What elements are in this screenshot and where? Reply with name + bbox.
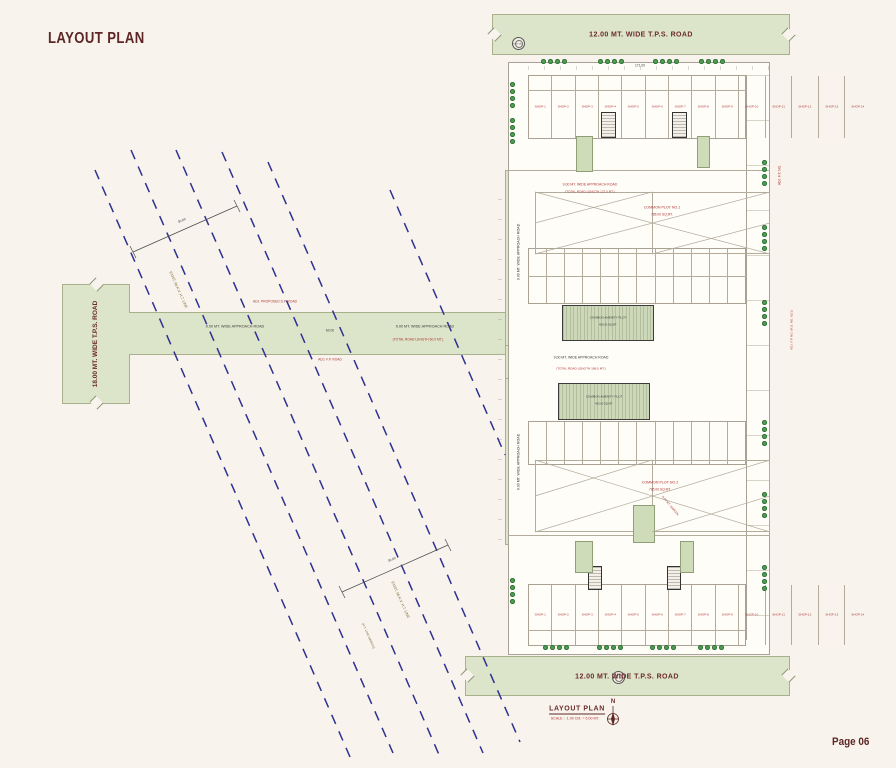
tree-icon: [762, 307, 767, 312]
shop-cell: SHOP-10: [739, 76, 766, 138]
tree-icon: [510, 96, 515, 101]
tree-icon: [719, 645, 724, 650]
tree-icon: [762, 225, 767, 230]
tree-icon: [510, 118, 515, 123]
shop-cell: SHOP-13: [819, 76, 846, 138]
bottom-road-label: 12.00 MT. WIDE T.P.S. ROAD: [575, 674, 679, 681]
amenity-plot-2: [558, 383, 650, 420]
shop-label: SHOP-1: [535, 106, 546, 109]
tree-icon: [541, 59, 546, 64]
vertical-road-label-lower: 9.00 MT. WIDE APPROACH ROAD: [517, 434, 521, 491]
vertical-road-label-upper: 9.00 MT. WIDE APPROACH ROAD: [517, 224, 521, 281]
ht-dimension-lines: [130, 200, 451, 598]
amenity-plot-2-area: 450.00 SQ.MT.: [595, 403, 613, 406]
dimension-ticks-top: [528, 66, 770, 70]
tree-icon: [706, 59, 711, 64]
tree-icon: [762, 420, 767, 425]
ht-span-dimension-1: 30.00: [178, 218, 187, 224]
shop-cell: SHOP-10: [739, 585, 766, 645]
tree-icon: [705, 645, 710, 650]
tree-icon: [762, 321, 767, 326]
tree-icon: [510, 139, 515, 144]
title-block-scale: SCALE :- 1.00 CM. = 5.00 MT.: [551, 717, 600, 721]
shop-row-bottom: SHOP-1SHOP-2SHOP-3SHOP-4SHOP-5SHOP-6SHOP…: [528, 584, 746, 646]
tree-icon: [564, 645, 569, 650]
tree-icon: [510, 132, 515, 137]
tree-icon: [698, 645, 703, 650]
shop-cell: SHOP-9: [716, 585, 739, 645]
north-label: N: [611, 699, 615, 705]
main-road-label-left: 9.00 MT. WIDE APPROACH ROAD: [206, 325, 265, 329]
shop-label: SHOP-11: [772, 614, 785, 617]
tree-icon: [543, 645, 548, 650]
ht-line-label-1: EXIST. 66 K.V. H.T. LINE: [168, 271, 188, 309]
courtyard: [575, 541, 593, 573]
tree-icon: [510, 103, 515, 108]
shop-label: SHOP-7: [675, 614, 686, 617]
shop-label: SHOP-9: [721, 106, 732, 109]
tree-icon: [604, 645, 609, 650]
amenity-plot-1-area: 450.00 SQ.MT.: [599, 324, 617, 327]
shop-cell: SHOP-8: [692, 585, 715, 645]
tree-icon: [657, 645, 662, 650]
shop-label: SHOP-7: [675, 106, 686, 109]
shop-cell: SHOP-14: [845, 585, 871, 645]
tree-icon: [699, 59, 704, 64]
shop-cell: SHOP-9: [716, 76, 739, 138]
tree-icon: [762, 513, 767, 518]
layout-plan-page: LAYOUT PLAN Page 06 SHOP-1SHOP-2SHOP-3SH…: [0, 0, 896, 768]
left-road-label: 18.00 MT. WIDE T.P.S. ROAD: [93, 301, 100, 388]
tree-icon: [720, 59, 725, 64]
shop-label: SHOP-5: [628, 614, 639, 617]
page-number: Page 06: [832, 736, 869, 748]
shop-cell: SHOP-5: [622, 585, 645, 645]
tree-icon: [555, 59, 560, 64]
tree-icon: [762, 167, 767, 172]
common-plot-2-area: 785.00 SQ.MT.: [649, 488, 671, 491]
tree-icon: [762, 586, 767, 591]
well-symbol: EXIST. WELL: [512, 37, 525, 50]
shop-cell: SHOP-14: [845, 76, 871, 138]
courtyard: [576, 136, 593, 172]
shop-label: SHOP-2: [558, 106, 569, 109]
plot-cell: [601, 422, 619, 464]
shop-cell: SHOP-2: [552, 585, 575, 645]
amenity-plot-2-name: COMMON AMENITY PLOT: [586, 396, 623, 399]
shop-cell: SHOP-5: [622, 76, 645, 138]
shop-label: SHOP-1: [535, 614, 546, 617]
common-plot-1-area: 785.00 SQ.MT.: [651, 213, 673, 216]
tree-icon: [660, 59, 665, 64]
tree-icon: [762, 239, 767, 244]
shop-label: SHOP-5: [628, 106, 639, 109]
shop-label: SHOP-12: [798, 106, 811, 109]
shop-cell: SHOP-6: [646, 76, 669, 138]
title-block-title: LAYOUT PLAN: [549, 706, 605, 715]
tree-icon: [510, 578, 515, 583]
tree-icon: [605, 59, 610, 64]
tree-icon: [562, 59, 567, 64]
tree-icon: [510, 89, 515, 94]
shop-label: SHOP-6: [651, 106, 662, 109]
plot-cell: [710, 422, 728, 464]
tree-icon: [597, 645, 602, 650]
grid-line: [528, 630, 746, 631]
tree-icon: [762, 506, 767, 511]
plot-cell: [583, 422, 601, 464]
well-label: EXIST. WELL: [513, 43, 523, 45]
block-width-dimension: 171.00: [635, 64, 645, 67]
main-approach-road: [129, 312, 533, 355]
courtyard: [633, 505, 655, 543]
plot-cell: [529, 422, 547, 464]
shop-label: SHOP-13: [825, 614, 838, 617]
tree-icon: [674, 59, 679, 64]
tree-icon: [653, 59, 658, 64]
common-plot-1: [535, 192, 770, 254]
tree-icon: [762, 572, 767, 577]
amenity-plot-1-name: COMMON AMENITY PLOT: [590, 317, 627, 320]
shop-label: SHOP-10: [746, 614, 759, 617]
shop-label: SHOP-8: [698, 614, 709, 617]
tree-icon: [762, 174, 767, 179]
shop-label: SHOP-6: [651, 614, 662, 617]
shop-label: SHOP-13: [825, 106, 838, 109]
north-arrow-icon: [607, 706, 619, 726]
tree-icon: [650, 645, 655, 650]
tree-icon: [762, 441, 767, 446]
tree-icon: [510, 599, 515, 604]
plot-cell: [637, 422, 655, 464]
plot-cell: [728, 422, 745, 464]
shop-cell: SHOP-12: [792, 585, 819, 645]
shop-label: SHOP-11: [772, 106, 785, 109]
courtyard: [697, 136, 710, 168]
approach-road-note: 9.00 MT. WIDE APPROACH ROAD: [563, 183, 618, 186]
tree-icon: [762, 565, 767, 570]
tree-icon: [762, 492, 767, 497]
tree-icon: [762, 499, 767, 504]
shop-row-top: SHOP-1SHOP-2SHOP-3SHOP-4SHOP-5SHOP-6SHOP…: [528, 75, 746, 139]
mid-road-label: 9.00 MT. WIDE APPROACH ROAD: [554, 356, 609, 359]
approach-road-length-note: (TOTAL ROAD LENGTH 127.0 MT.): [565, 190, 615, 193]
shop-cell: SHOP-13: [819, 585, 846, 645]
tree-icon: [510, 585, 515, 590]
shop-label: SHOP-3: [581, 106, 592, 109]
tree-icon: [664, 645, 669, 650]
shop-label: SHOP-14: [852, 106, 865, 109]
tree-icon: [762, 300, 767, 305]
tree-icon: [618, 645, 623, 650]
plot-row-lower: [528, 421, 746, 465]
shop-cell: SHOP-1: [529, 585, 552, 645]
shop-label: SHOP-12: [798, 614, 811, 617]
staircase-block: [667, 566, 681, 590]
tree-icon: [762, 160, 767, 165]
ht-span-dimension-2: 30.00: [388, 557, 397, 563]
shop-label: SHOP-4: [605, 106, 616, 109]
main-road-length-note: (TOTAL ROAD LENGTH 60.0 MT.): [393, 338, 444, 341]
shop-cell: SHOP-8: [692, 76, 715, 138]
scheme-boundary: [508, 62, 770, 655]
tree-icon: [713, 59, 718, 64]
tree-icon: [667, 59, 672, 64]
shop-cell: SHOP-2: [552, 76, 575, 138]
tree-icon: [762, 427, 767, 432]
tree-icon: [612, 59, 617, 64]
shop-cell: SHOP-3: [576, 585, 599, 645]
tree-icon: [762, 232, 767, 237]
tree-icon: [671, 645, 676, 650]
mid-road-length-note: (TOTAL ROAD LENGTH 186.0 MT.): [556, 367, 606, 370]
main-road-label-right: 9.00 MT. WIDE APPROACH ROAD: [396, 325, 455, 329]
shop-label: SHOP-9: [721, 614, 732, 617]
shop-cell: SHOP-6: [646, 585, 669, 645]
adjacent-fp-right-2: ADJ. F.P. NO. (R.S. NO. 81/1): [791, 310, 794, 350]
tree-icon: [510, 125, 515, 130]
tree-icon: [762, 579, 767, 584]
tree-icon: [762, 314, 767, 319]
shop-cell: SHOP-12: [792, 76, 819, 138]
tree-icon: [510, 82, 515, 87]
grid-line: [528, 90, 746, 91]
shop-label: SHOP-10: [746, 106, 759, 109]
ht-margin-label: (H.T. LINE MARGIN): [361, 623, 375, 649]
tree-icon: [611, 645, 616, 650]
shop-label: SHOP-8: [698, 106, 709, 109]
tree-icon: [548, 59, 553, 64]
common-plot-1-name: COMMON PLOT NO.1: [644, 206, 681, 210]
shop-cell: SHOP-7: [669, 585, 692, 645]
shop-label: SHOP-4: [605, 614, 616, 617]
shop-label: SHOP-2: [558, 614, 569, 617]
tree-icon: [762, 246, 767, 251]
shop-label: SHOP-14: [852, 614, 865, 617]
tree-icon: [598, 59, 603, 64]
adjacent-road-note: ADJ. PROPOSED D.P. ROAD: [253, 300, 297, 303]
courtyard: [680, 541, 694, 573]
ht-line-dashes: [95, 150, 520, 757]
plot-cell: [619, 422, 637, 464]
adjacent-fp-right-1: ADJ. F.P. NO.: [778, 165, 781, 185]
plot-cell: [674, 422, 692, 464]
common-plot-2-name: COMMON PLOT NO.2: [642, 481, 679, 485]
adjacent-fp-note: ADJ. F.P. ROAD: [318, 358, 342, 361]
tree-icon: [762, 181, 767, 186]
tree-icon: [550, 645, 555, 650]
tree-icon: [557, 645, 562, 650]
ht-line-label-2: EXIST. 66 K.V. H.T. LINE: [390, 581, 410, 619]
shop-cell: SHOP-3: [576, 76, 599, 138]
top-road-label: 12.00 MT. WIDE T.P.S. ROAD: [589, 32, 693, 39]
staircase-block: [601, 112, 616, 138]
dimension-ticks-left: [498, 180, 502, 540]
shop-cell: SHOP-1: [529, 76, 552, 138]
tree-icon: [762, 434, 767, 439]
main-road-dimension: 60.00: [326, 329, 334, 332]
shop-cell: SHOP-11: [766, 585, 792, 645]
plot-cell: [692, 422, 710, 464]
shop-cell: SHOP-11: [766, 76, 792, 138]
plot-cell: [656, 422, 674, 464]
staircase-block: [672, 112, 687, 138]
plot-cell: [547, 422, 565, 464]
plot-cell: [565, 422, 583, 464]
grid-line: [528, 276, 746, 277]
grid-line: [508, 170, 770, 171]
shop-label: SHOP-3: [581, 614, 592, 617]
tree-icon: [510, 592, 515, 597]
shop-cell: SHOP-4: [599, 585, 622, 645]
tree-icon: [712, 645, 717, 650]
tree-icon: [619, 59, 624, 64]
page-title: LAYOUT PLAN: [48, 30, 145, 48]
